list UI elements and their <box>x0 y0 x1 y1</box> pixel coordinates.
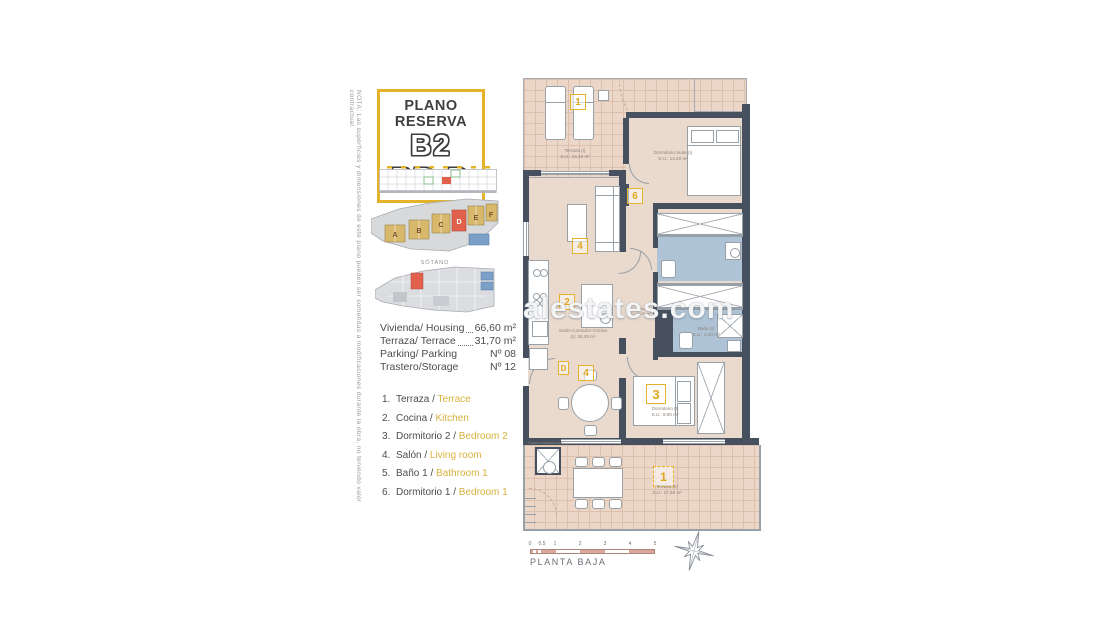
chair <box>609 457 622 467</box>
legend-es: Baño 1 / <box>396 468 433 479</box>
sun-lounger <box>545 86 566 140</box>
wall-segment <box>742 104 750 442</box>
legend-number: 3. <box>382 431 396 442</box>
side-table <box>598 90 609 101</box>
block-b-label: B <box>416 228 421 235</box>
chair <box>611 397 622 410</box>
info-row-terrace: Terraza/ Terrace 31,70 m² <box>380 335 516 348</box>
utility-closet <box>535 447 561 475</box>
legend-number: 6. <box>382 487 396 498</box>
wall-segment <box>523 386 529 442</box>
legend-es: Terraza / <box>396 394 435 405</box>
tick-label: 4 <box>629 541 632 547</box>
room-label-suite: Dormitorio Suite (I) S.U.: 14,20 m² <box>641 150 705 162</box>
room-badge-suite: 6 <box>627 188 643 204</box>
wall-segment <box>619 176 626 252</box>
building-elevation-thumbnail <box>379 165 497 195</box>
chair <box>575 457 588 467</box>
block-c-label: C <box>438 222 443 229</box>
legend-item-bedroom2: 3.Dormitorio 2 / Bedroom 2 <box>382 431 512 442</box>
legend-number: 2. <box>382 413 396 424</box>
scale-bar <box>530 549 655 554</box>
wall-segment <box>653 203 750 209</box>
compass-rose-icon <box>673 530 715 572</box>
sliding-door-terrace-top <box>541 171 609 175</box>
legend-en: Terrace <box>438 394 471 405</box>
window-living <box>523 222 529 256</box>
plan-title: PLANO RESERVA <box>388 98 474 130</box>
room-legend: 1.Terraza / Terrace 2.Cocina / Kitchen 3… <box>382 394 512 505</box>
legend-en: Kitchen <box>435 413 468 424</box>
tick-label: 0 <box>529 541 532 547</box>
sofa <box>595 186 620 252</box>
legend-number: 4. <box>382 450 396 461</box>
info-label: Vivienda/ Housing <box>380 322 464 335</box>
info-value: 31,70 m² <box>475 335 516 348</box>
block-e-label: E <box>474 215 479 222</box>
info-label: Trastero/Storage <box>380 361 458 374</box>
terrace-edge <box>759 445 761 531</box>
room-badge-living: 4 <box>572 238 588 254</box>
wall-segment <box>626 112 750 118</box>
room-label-terrace-top: Terraza (I) S.U.: 14,10 m² <box>543 148 607 160</box>
basement-label: SÓTANO <box>421 259 450 266</box>
chair <box>592 457 605 467</box>
block-d-label: D <box>456 219 461 226</box>
scale-segment <box>556 550 581 553</box>
window-bedroom <box>663 439 725 444</box>
scale-segment <box>580 550 605 553</box>
door-badge: D <box>558 361 569 375</box>
basement-plan-thumbnail: SÓTANO <box>375 256 495 318</box>
chair <box>558 397 569 410</box>
room-label-bath: Baño (I) S.U.: 3,40 m² <box>683 326 729 338</box>
wardrobe <box>657 213 743 235</box>
legend-number: 1. <box>382 394 396 405</box>
room-label-utility: Cuarto instalaciones <box>528 441 570 446</box>
watermark: alestates.com <box>523 292 734 326</box>
info-row-parking: Parking/ Parking Nº 08 <box>380 348 516 361</box>
block-f-label: F <box>489 212 494 219</box>
legend-es: Dormitorio 2 / <box>396 431 456 442</box>
room-label-bedroom: Dormitorio (I) S.U.: 8,90 m² <box>635 406 695 418</box>
partition <box>657 235 743 237</box>
room-area: S.U.: 8,90 m² <box>635 412 695 418</box>
chair <box>592 499 605 509</box>
info-row-storage: Trastero/Storage Nº 12 <box>380 361 516 374</box>
basement-plan-graphic: SÓTANO <box>375 256 495 318</box>
info-value: 66,60 m² <box>475 322 516 335</box>
tick-label: 3 <box>604 541 607 547</box>
info-label: Terraza/ Terrace <box>380 335 456 348</box>
disclaimer-note: NOTA: Las superficies y dimensiones de e… <box>348 90 362 522</box>
info-value: Nº 08 <box>490 348 516 361</box>
bathroom-sink <box>725 242 741 260</box>
room-area: (I): 26,30 m² <box>547 334 619 340</box>
fridge <box>529 348 548 370</box>
legend-es: Cocina / <box>396 413 433 424</box>
site-plan-thumbnail: A B C D E F <box>371 197 499 255</box>
round-dining-table <box>571 384 609 422</box>
chair <box>584 425 597 436</box>
housing-info: Vivienda/ Housing 66,60 m² Terraza/ Terr… <box>380 322 516 374</box>
building-elevation-graphic <box>379 165 497 195</box>
dot-leader <box>458 345 473 346</box>
room-label-terrace-bottom: Terraza (II) S.U.: 17,60 m² <box>637 484 697 496</box>
legend-item-terrace: 1.Terraza / Terrace <box>382 394 512 405</box>
info-row-housing: Vivienda/ Housing 66,60 m² <box>380 322 516 335</box>
room-area: S.U.: 3,40 m² <box>683 332 729 338</box>
compass-star <box>669 526 720 577</box>
dot-leader <box>466 332 472 333</box>
block-a-label: A <box>392 232 397 239</box>
legend-en: Bedroom 2 <box>459 431 508 442</box>
room-badge-terrace1: 1 <box>570 94 586 110</box>
page: { "note": "NOTA: Las superficies y dimen… <box>0 0 1110 626</box>
legend-number: 5. <box>382 468 396 479</box>
wardrobe <box>697 362 725 434</box>
legend-item-bathroom1: 5.Baño 1 / Bathroom 1 <box>382 468 512 479</box>
tick-label: 2 <box>579 541 582 547</box>
legend-en: Bathroom 1 <box>436 468 488 479</box>
bathroom-sink <box>727 340 741 352</box>
toilet <box>661 260 676 278</box>
wall-segment <box>742 438 759 445</box>
floor-caption: PLANTA BAJA <box>530 557 606 567</box>
tick-label: 5 <box>654 541 657 547</box>
floor-plan: 1 6 4 2 D 4 3 1 Terraza (I) S.U.: 14,10 … <box>515 70 767 545</box>
wall-segment <box>523 170 529 222</box>
room-area: S.U.: 17,60 m² <box>637 490 697 496</box>
scale-segment <box>543 550 555 553</box>
room-badge-bedroom: 3 <box>646 384 666 404</box>
coffee-table <box>567 204 587 242</box>
sliding-door-terrace-bottom <box>561 439 621 444</box>
room-area: S.U.: 14,20 m² <box>641 156 705 162</box>
room-badge-dining: 4 <box>578 365 594 381</box>
legend-es: Dormitorio 1 / <box>396 487 456 498</box>
room-name: Cuarto instalaciones <box>528 441 570 446</box>
info-label: Parking/ Parking <box>380 348 457 361</box>
wall-segment <box>619 338 626 354</box>
scale-segment <box>629 550 654 553</box>
chair <box>609 499 622 509</box>
dining-table <box>573 468 623 498</box>
legend-item-livingroom: 4.Salón / Living room <box>382 450 512 461</box>
wall-segment <box>655 352 750 357</box>
legend-en: Living room <box>430 450 482 461</box>
room-label-living: Salón-Comedor-Cocina (I): 26,30 m² <box>547 328 619 340</box>
chair <box>575 499 588 509</box>
tick-label: 1 <box>554 541 557 547</box>
site-plan-graphic: A B C D E F <box>371 197 499 255</box>
legend-en: Bedroom 1 <box>459 487 508 498</box>
scale-segment <box>605 550 630 553</box>
info-value: Nº 12 <box>490 361 516 374</box>
tick-label: 0.5 <box>539 541 546 547</box>
wall-segment <box>623 118 629 164</box>
legend-item-kitchen: 2.Cocina / Kitchen <box>382 413 512 424</box>
room-area: S.U.: 14,10 m² <box>543 154 607 160</box>
legend-es: Salón / <box>396 450 427 461</box>
legend-item-bedroom1: 6.Dormitorio 1 / Bedroom 1 <box>382 487 512 498</box>
terrace-edge <box>523 529 761 531</box>
